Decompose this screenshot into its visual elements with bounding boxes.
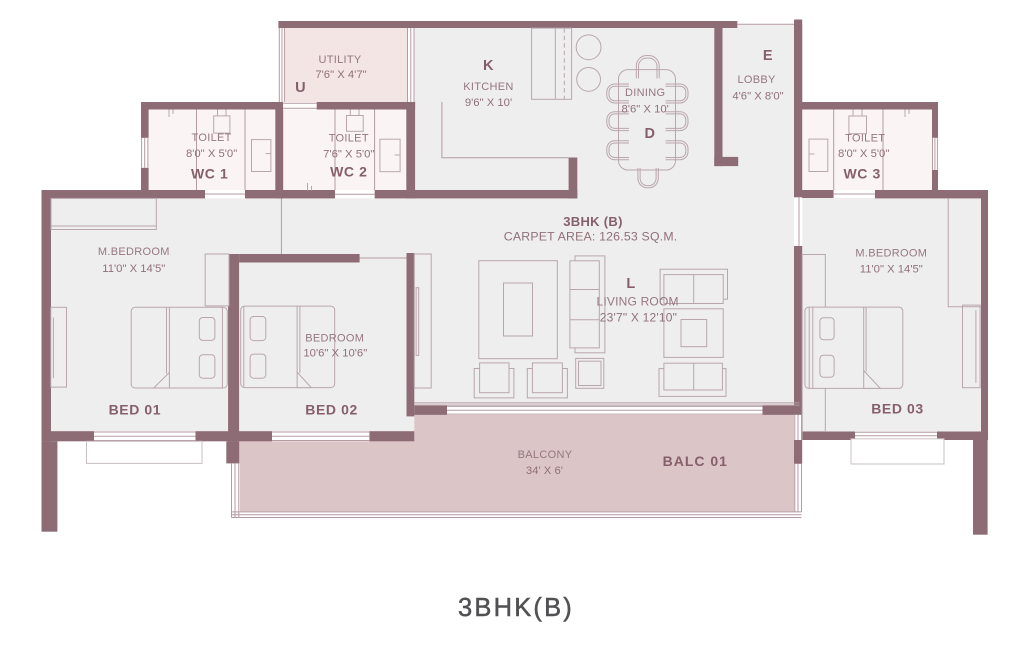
svg-text:23'7" X 12'10": 23'7" X 12'10": [600, 311, 677, 325]
svg-text:TOILET: TOILET: [329, 133, 369, 145]
svg-text:DINING: DINING: [625, 87, 665, 99]
svg-text:KITCHEN: KITCHEN: [463, 81, 513, 93]
svg-text:L: L: [626, 276, 635, 292]
svg-text:BED 01: BED 01: [109, 402, 162, 418]
svg-text:TOILET: TOILET: [845, 133, 885, 145]
svg-text:M.BEDROOM: M.BEDROOM: [855, 248, 927, 260]
svg-text:7'6" X 5'0": 7'6" X 5'0": [323, 149, 374, 161]
svg-text:9'6" X 10': 9'6" X 10': [465, 97, 512, 109]
svg-text:LOBBY: LOBBY: [738, 74, 777, 86]
svg-text:7'6" X 4'7": 7'6" X 4'7": [315, 69, 366, 81]
svg-text:BED 03: BED 03: [871, 401, 924, 417]
svg-text:LIVING ROOM: LIVING ROOM: [596, 295, 678, 309]
svg-text:3BHK(B): 3BHK(B): [458, 594, 574, 622]
svg-text:BALCONY: BALCONY: [518, 449, 573, 461]
svg-text:TOILET: TOILET: [192, 132, 232, 144]
svg-text:E: E: [763, 48, 773, 64]
svg-text:CARPET AREA: 126.53 SQ.M.: CARPET AREA: 126.53 SQ.M.: [504, 230, 678, 244]
svg-text:M.BEDROOM: M.BEDROOM: [98, 246, 170, 258]
svg-text:11'0" X 14'5": 11'0" X 14'5": [102, 263, 165, 275]
svg-text:BEDROOM: BEDROOM: [305, 333, 364, 345]
svg-text:4'6" X 8'0": 4'6" X 8'0": [732, 91, 783, 103]
svg-text:U: U: [295, 80, 306, 96]
svg-text:WC 1: WC 1: [191, 165, 228, 181]
svg-text:8'0" X 5'0": 8'0" X 5'0": [838, 148, 889, 160]
svg-text:BED 02: BED 02: [305, 402, 358, 418]
svg-text:34' X 6': 34' X 6': [526, 465, 563, 477]
svg-text:8'6" X 10': 8'6" X 10': [622, 104, 669, 116]
svg-text:BALC 01: BALC 01: [663, 453, 728, 469]
svg-text:K: K: [483, 58, 494, 74]
svg-text:D: D: [645, 126, 656, 142]
svg-text:UTILITY: UTILITY: [318, 54, 361, 66]
svg-text:3BHK (B): 3BHK (B): [563, 214, 622, 229]
svg-text:10'6" X 10'6": 10'6" X 10'6": [303, 348, 367, 360]
svg-text:WC 2: WC 2: [330, 164, 367, 180]
svg-text:8'0" X 5'0": 8'0" X 5'0": [186, 148, 237, 160]
svg-text:WC 3: WC 3: [843, 166, 880, 182]
svg-text:11'0" X 14'5": 11'0" X 14'5": [860, 264, 923, 276]
